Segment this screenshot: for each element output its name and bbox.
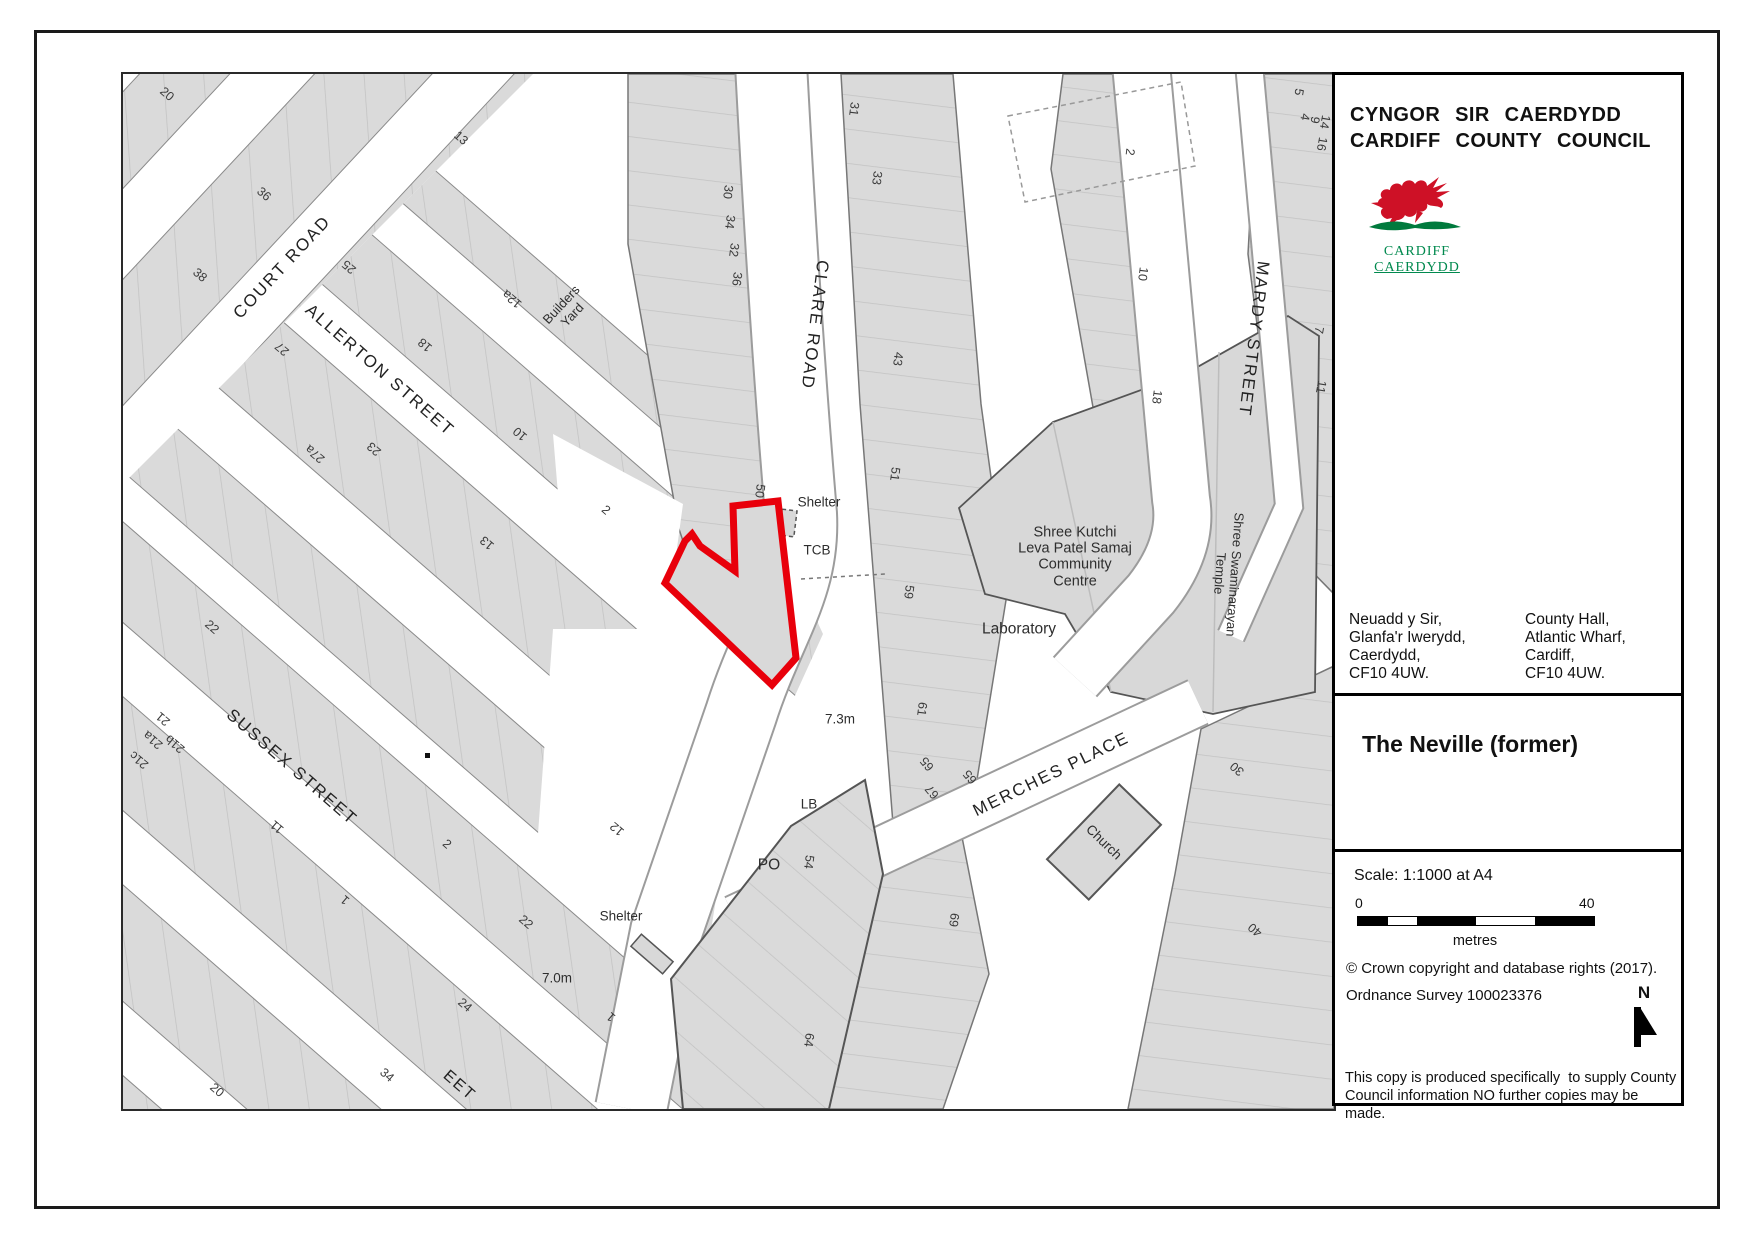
scale-segment	[1358, 917, 1388, 925]
scale-end-label: 40	[1579, 895, 1595, 911]
page: COURT ROADALLERTON STREETSUSSEX STREETCL…	[0, 0, 1753, 1241]
map-area: COURT ROADALLERTON STREETSUSSEX STREETCL…	[121, 72, 1336, 1111]
number-label: 61	[914, 701, 930, 717]
dragon-icon	[1357, 175, 1477, 237]
restriction-note: This copy is produced specifically to su…	[1345, 1069, 1680, 1123]
number-label: 34	[722, 214, 738, 230]
place-label: Shree Kutchi Leva Patel Samaj Community …	[1018, 525, 1132, 590]
place-label: 7.3m	[825, 711, 855, 726]
number-label: 18	[1149, 389, 1165, 405]
place-label: Laboratory	[982, 620, 1056, 637]
number-label: 30	[720, 184, 736, 200]
logo-cardiff: CARDIFF	[1357, 244, 1477, 260]
address-welsh: Neuadd y Sir, Glanfa'r Iwerydd, Caerdydd…	[1349, 611, 1466, 683]
number-label: 2	[1123, 148, 1138, 157]
number-label: 16	[1314, 136, 1330, 152]
place-label: Shelter	[798, 494, 841, 509]
place-label: LB	[801, 796, 818, 811]
scale-bar	[1357, 916, 1595, 926]
scale-start-label: 0	[1355, 895, 1363, 911]
number-label: 10	[1135, 266, 1151, 282]
number-label: 64	[801, 1032, 817, 1048]
number-label: 50	[752, 483, 768, 499]
place-label: PO	[758, 856, 780, 873]
number-label: 54	[801, 854, 817, 870]
os-licence-text: Ordnance Survey 100023376	[1346, 987, 1542, 1004]
north-label: N	[1631, 983, 1657, 1003]
number-label: 33	[869, 170, 885, 186]
cardiff-council-logo: CARDIFF CAERDYDD	[1357, 175, 1477, 276]
scale-segment	[1417, 917, 1476, 925]
number-label: 11	[1313, 379, 1329, 394]
number-label: 36	[729, 271, 745, 287]
logo-caerdydd: CAERDYDD	[1357, 260, 1477, 276]
address-english: County Hall, Atlantic Wharf, Cardiff, CF…	[1525, 611, 1626, 683]
scale-segment	[1535, 917, 1594, 925]
number-label: 32	[726, 242, 742, 258]
number-label: 51	[887, 466, 903, 482]
site-title: The Neville (former)	[1362, 731, 1578, 758]
number-label: 43	[890, 351, 906, 367]
logo-wordmark: CARDIFF CAERDYDD	[1357, 244, 1477, 276]
number-label: 31	[846, 101, 862, 117]
panel-divider	[1335, 849, 1681, 852]
number-label: 69	[946, 912, 962, 928]
copyright-text: © Crown copyright and database rights (2…	[1346, 960, 1657, 977]
panel-divider	[1335, 693, 1681, 696]
scale-segment	[1388, 917, 1418, 925]
scale-units-label: metres	[1357, 933, 1593, 949]
council-header: CYNGOR SIR CAERDYDD CARDIFF COUNTY COUNC…	[1350, 102, 1651, 154]
scale-text: Scale: 1:1000 at A4	[1354, 867, 1493, 885]
place-label: Shelter	[600, 908, 643, 923]
north-arrow: N	[1631, 983, 1657, 1054]
north-arrow-icon	[1631, 1003, 1657, 1049]
place-label: TCB	[804, 542, 831, 557]
number-label: 14	[1317, 114, 1333, 130]
scale-segment	[1476, 917, 1535, 925]
number-label: 59	[901, 584, 917, 600]
info-panel: CYNGOR SIR CAERDYDD CARDIFF COUNTY COUNC…	[1332, 72, 1684, 1106]
place-label: 7.0m	[542, 970, 572, 985]
